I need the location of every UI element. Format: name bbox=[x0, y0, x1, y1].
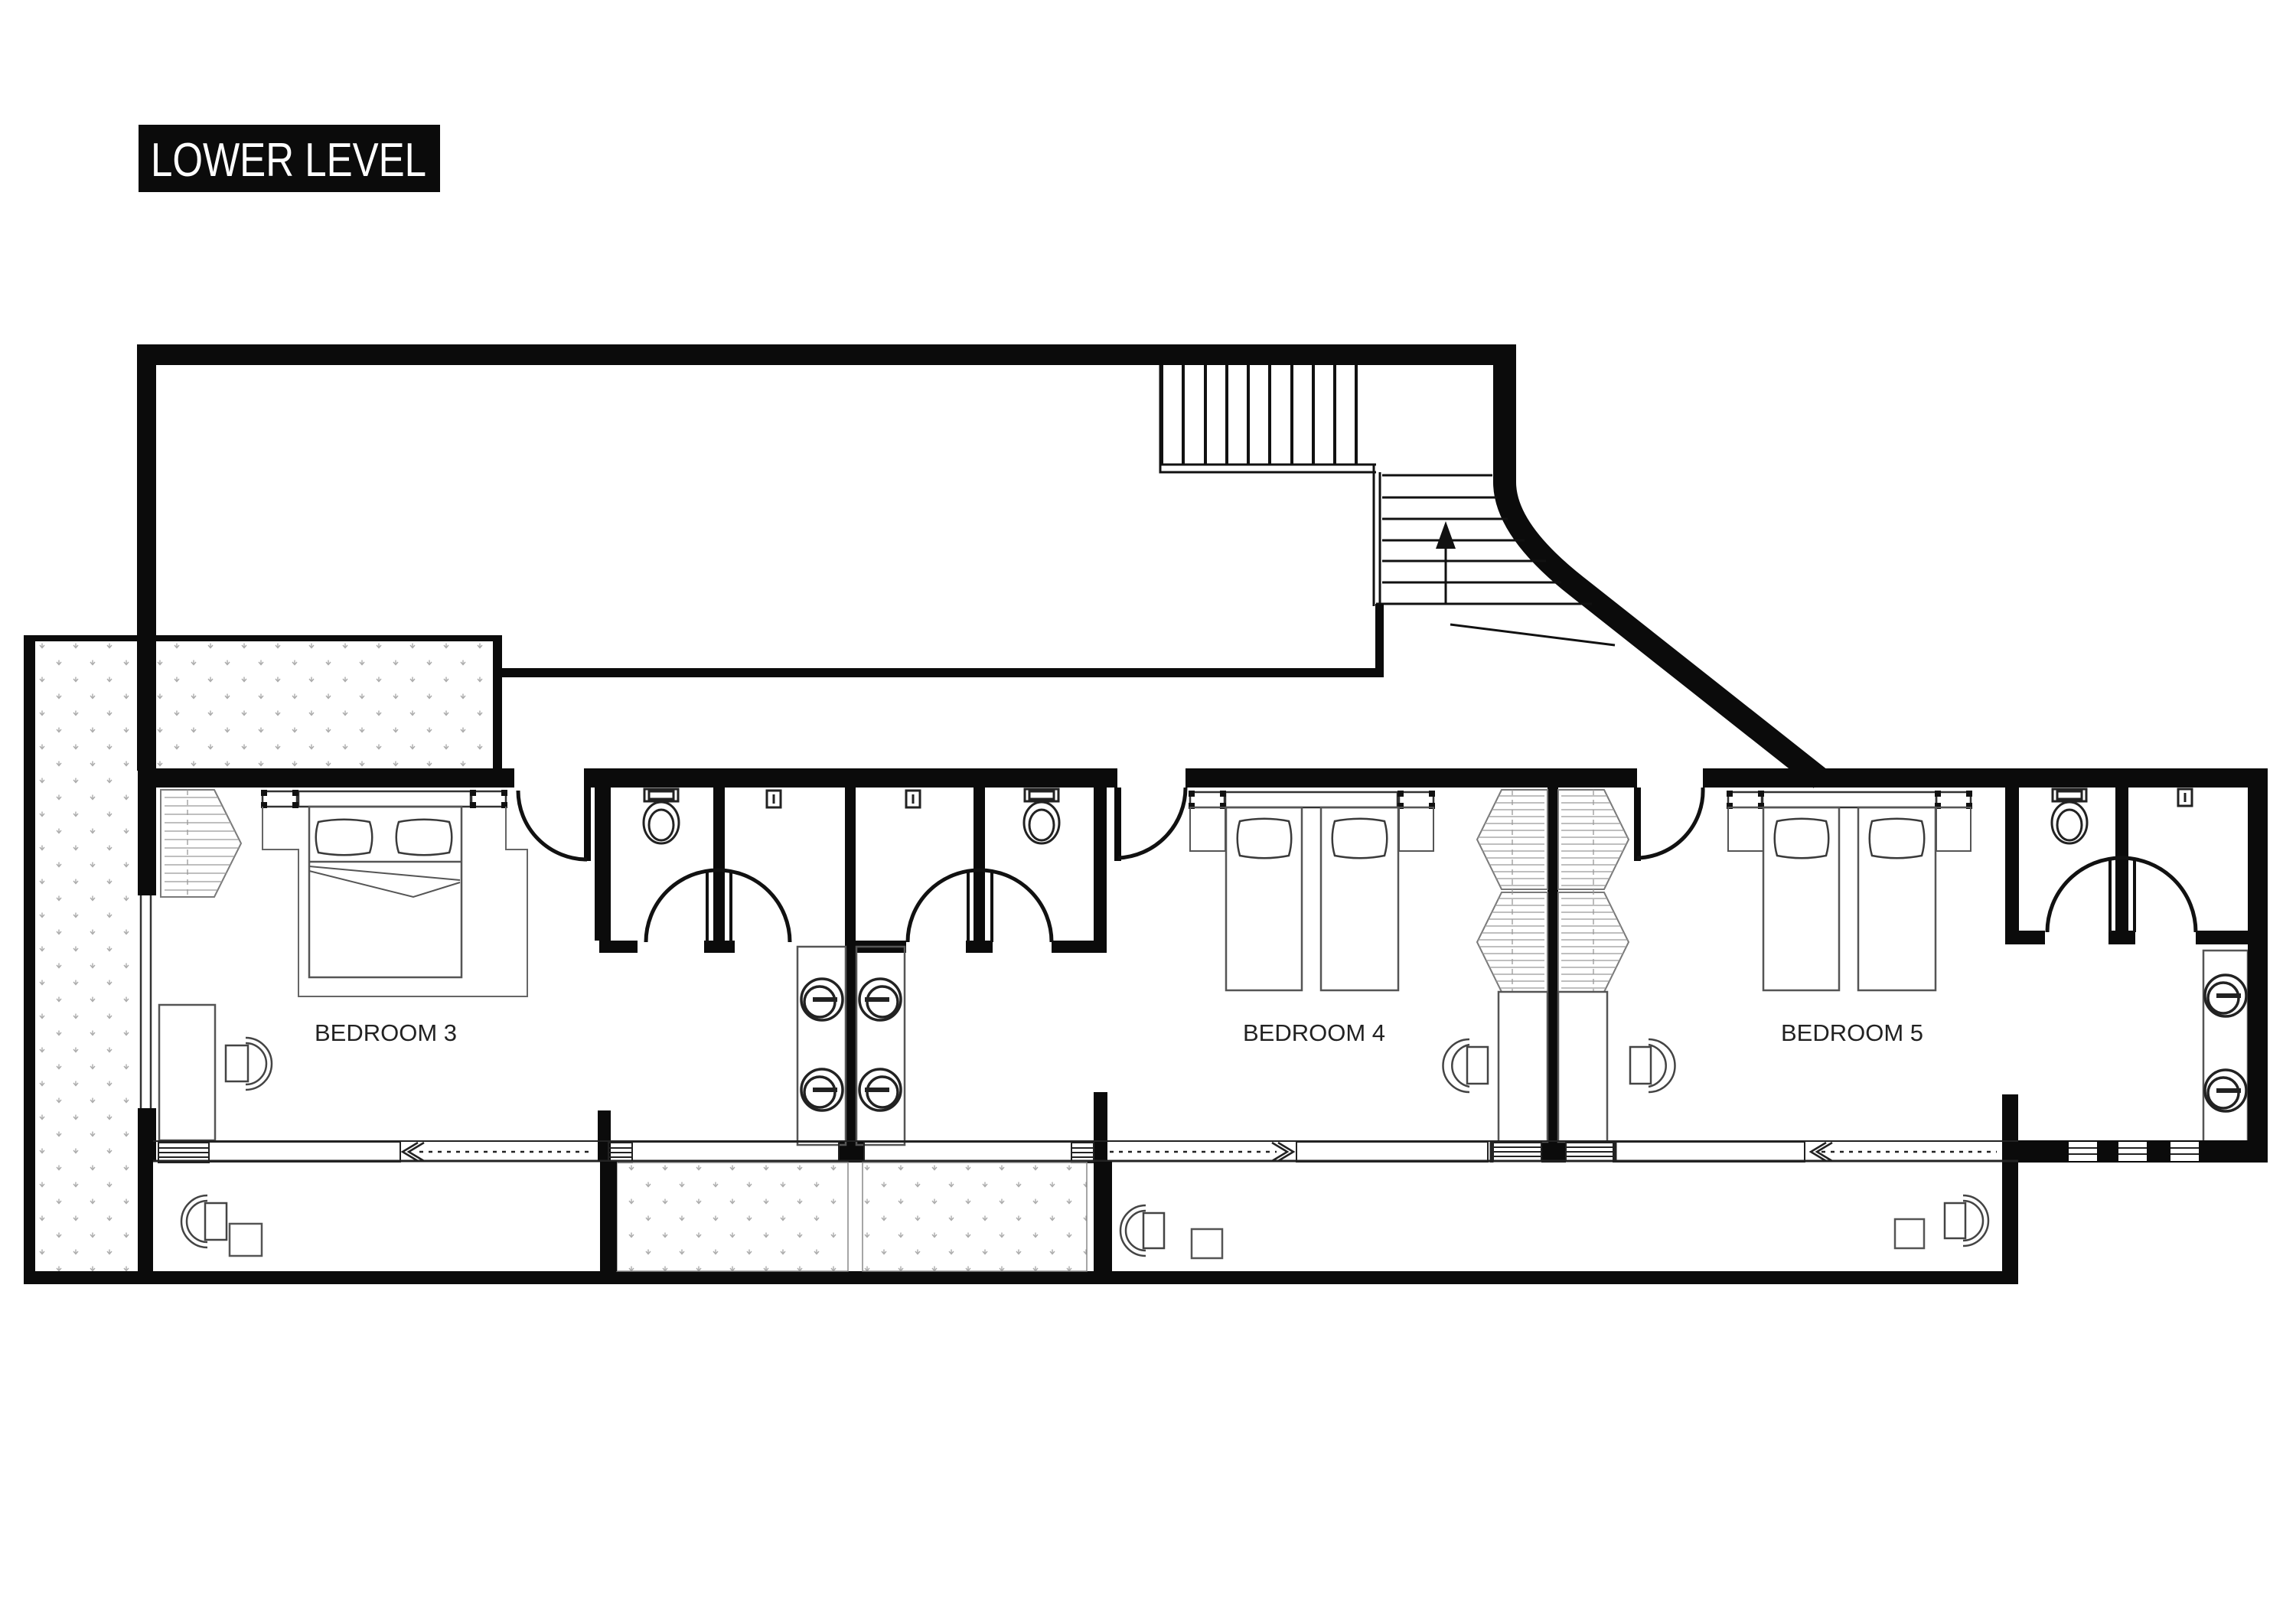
svg-text:BEDROOM 4: BEDROOM 4 bbox=[1243, 1019, 1385, 1046]
svg-text:LOWER LEVEL: LOWER LEVEL bbox=[151, 134, 426, 187]
svg-text:BEDROOM 5: BEDROOM 5 bbox=[1781, 1019, 1923, 1046]
svg-text:BEDROOM 3: BEDROOM 3 bbox=[315, 1019, 457, 1046]
